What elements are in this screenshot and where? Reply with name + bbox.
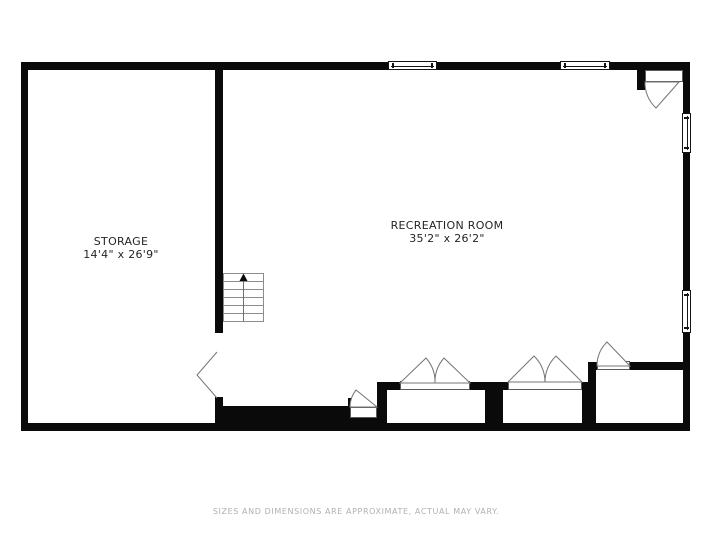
floorplan-canvas: STORAGE 14'4" x 26'9" RECREATION ROOM 35… [0,0,711,533]
window-end-tick [684,147,689,149]
right-wall-segment-bottom [683,333,690,431]
window-pane-line [563,66,607,67]
left-wall [21,62,28,431]
top-window-2 [560,61,610,70]
closet2-door-sill [508,381,582,390]
closet2-double-door-icon [508,356,582,382]
window-pane-line [391,66,434,67]
right-window-1 [682,113,691,153]
recreation-bottom-thick-wall [215,406,348,423]
storage-doorway-icon [197,352,217,398]
room-name: STORAGE [41,235,201,248]
window-end-tick [684,117,689,119]
stairs-up-arrow-icon [240,274,248,282]
window-end-tick [564,63,566,68]
entry-recess-jamb [637,70,645,90]
utility-room-top-wall-right [630,362,690,370]
stairs-icon [224,274,264,322]
window-end-tick [684,327,689,329]
right-wall-segment-middle [683,153,690,290]
bottom-wall [21,423,690,431]
top-wall-segment-left [21,62,388,70]
storage-room-label: STORAGE 14'4" x 26'9" [41,235,201,261]
right-window-2 [682,290,691,333]
closet1-top-wall-left [377,382,400,390]
window-end-tick [604,63,606,68]
top-wall-segment-middle [437,62,560,70]
utility-room-top-wall-left [588,362,597,370]
small-door-sill [350,407,377,418]
room-dimensions: 14'4" x 26'9" [41,248,201,261]
entry-door-sill [645,70,683,82]
storage-divider-wall-upper [215,70,223,333]
disclaimer-text: SIZES AND DIMENSIONS ARE APPROXIMATE, AC… [106,507,606,516]
top-wall-segment-right [610,62,690,70]
closets-middle-wall [485,382,503,423]
window-pane-line [687,293,688,330]
utility-room-left-wall [588,362,596,423]
window-end-tick [684,294,689,296]
room-name: RECREATION ROOM [347,219,547,232]
top-window-1 [388,61,437,70]
closet1-top-wall-right [470,382,485,390]
window-end-tick [431,63,433,68]
window-pane-line [687,116,688,150]
floorplan-symbols-layer [0,0,711,533]
closet1-double-door-icon [400,358,470,383]
window-end-tick [392,63,394,68]
recreation-room-label: RECREATION ROOM 35'2" x 26'2" [347,219,547,245]
right-wall-segment-top [683,70,690,113]
room-dimensions: 35'2" x 26'2" [347,232,547,245]
utility-room-door-sill [597,361,630,370]
closet1-door-sill [400,381,470,390]
entry-door-swing-icon [645,82,679,108]
